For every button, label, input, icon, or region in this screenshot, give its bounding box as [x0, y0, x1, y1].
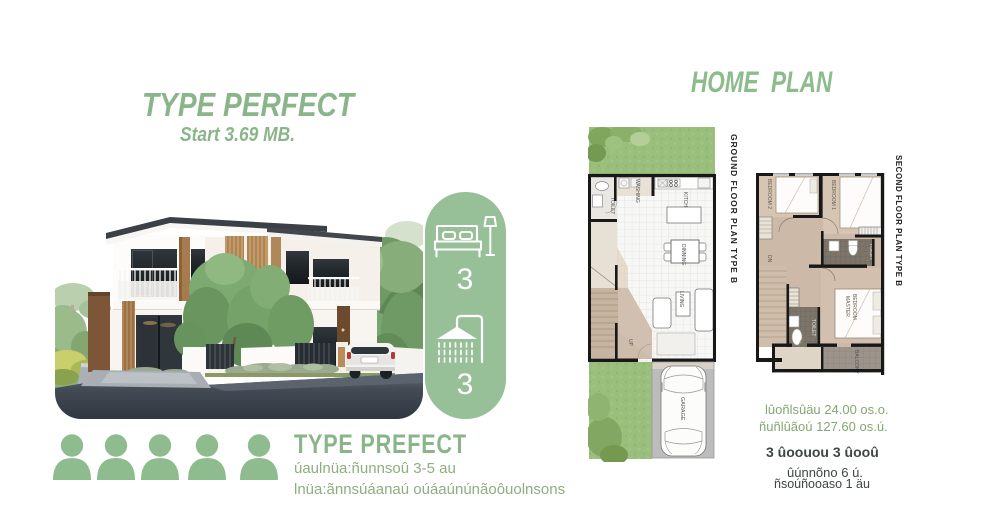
svg-text:BEDROOM: BEDROOM — [851, 294, 857, 320]
svg-text:LIVING: LIVING — [678, 291, 684, 308]
svg-text:DINNING: DINNING — [680, 244, 686, 265]
svg-text:DN: DN — [766, 255, 772, 263]
svg-text:MASTER: MASTER — [844, 296, 850, 317]
svg-text:TOILET: TOILET — [810, 319, 816, 336]
svg-text:3: 3 — [457, 368, 474, 401]
svg-text:3: 3 — [457, 263, 474, 296]
svg-text:GARAGE: GARAGE — [679, 397, 685, 421]
svg-text:WASHING: WASHING — [634, 179, 640, 203]
svg-text:BEDROOM 2: BEDROOM 2 — [766, 179, 772, 209]
svg-text:UP: UP — [627, 339, 633, 347]
svg-text:BEDROOM 1: BEDROOM 1 — [830, 180, 836, 210]
